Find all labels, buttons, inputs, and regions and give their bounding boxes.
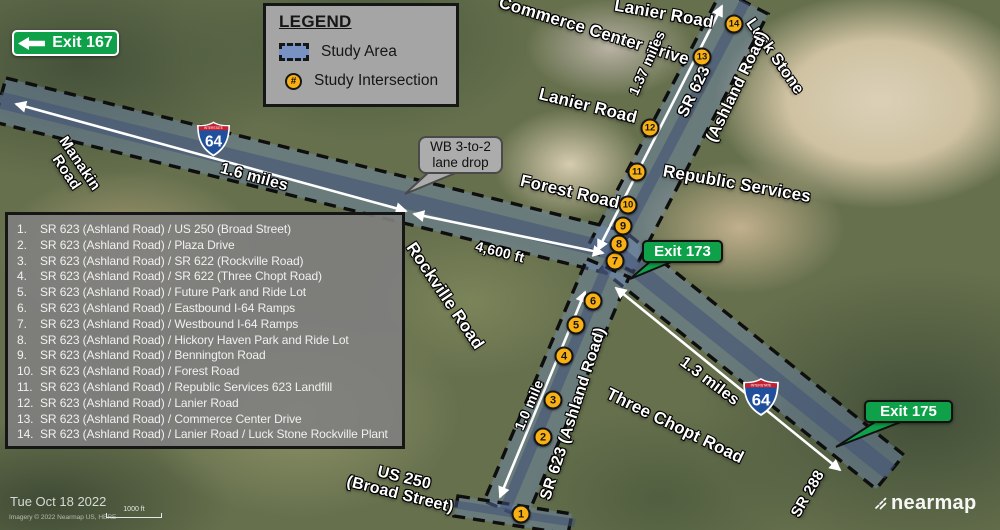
- intersection-number: 3.: [17, 254, 40, 270]
- study-intersection-marker-9: 9: [614, 217, 633, 236]
- exit-173-label: Exit 173: [654, 243, 711, 260]
- intersection-number: 2.: [17, 238, 40, 254]
- intersection-list-item: 2.SR 623 (Ashland Road) / Plaza Drive: [17, 238, 398, 254]
- nearmap-watermark: nearmap: [874, 492, 976, 515]
- interstate-band-text: INTERSTATE: [751, 383, 772, 387]
- intersection-name: SR 623 (Ashland Road) / SR 622 (Three Ch…: [40, 269, 322, 285]
- intersection-list-item: 9.SR 623 (Ashland Road) / Bennington Roa…: [17, 348, 398, 364]
- imagery-credit: Imagery © 2022 Nearmap US, HERE: [9, 514, 116, 521]
- study-area-label: Study Area: [321, 43, 397, 61]
- legend-box: LEGEND Study Area # Study Intersection: [263, 3, 459, 107]
- lane-drop-line2: lane drop: [432, 155, 488, 171]
- intersection-number: 13.: [17, 412, 40, 428]
- imagery-date: Tue Oct 18 2022: [10, 494, 106, 509]
- intersection-number: 10.: [17, 364, 40, 380]
- nearmap-wordmark: nearmap: [891, 492, 976, 515]
- intersection-list-item: 4.SR 623 (Ashland Road) / SR 622 (Three …: [17, 269, 398, 285]
- study-intersection-marker-10: 10: [619, 196, 638, 215]
- scale-bar: 1000 ft: [106, 506, 162, 518]
- intersection-list-item: 3.SR 623 (Ashland Road) / SR 622 (Rockvi…: [17, 254, 398, 270]
- intersection-number: 14.: [17, 427, 40, 443]
- legend-intersection-row: # Study Intersection: [279, 72, 456, 90]
- study-intersection-marker-3: 3: [544, 391, 563, 410]
- study-intersection-marker-1: 1: [512, 505, 531, 524]
- intersection-name: SR 623 (Ashland Road) / Eastbound I-64 R…: [40, 301, 295, 317]
- nearmap-logo-icon: [874, 497, 887, 510]
- intersection-name: SR 623 (Ashland Road) / Bennington Road: [40, 348, 266, 364]
- intersection-number: 5.: [17, 285, 40, 301]
- intersection-list-item: 7.SR 623 (Ashland Road) / Westbound I-64…: [17, 317, 398, 333]
- route-number: 64: [205, 134, 223, 151]
- study-intersection-marker-6: 6: [584, 292, 603, 311]
- exit-167-label: Exit 167: [52, 34, 112, 52]
- intersection-list-box: 1.SR 623 (Ashland Road) / US 250 (Broad …: [5, 212, 405, 449]
- intersection-list-item: 8.SR 623 (Ashland Road) / Hickory Haven …: [17, 333, 398, 349]
- intersection-number: 1.: [17, 222, 40, 238]
- exit-175-label: Exit 175: [880, 403, 937, 420]
- study-intersection-marker-2: 2: [534, 428, 553, 447]
- study-intersection-symbol: #: [285, 73, 302, 90]
- scale-bar-line: [106, 513, 162, 518]
- intersection-name: SR 623 (Ashland Road) / Lanier Road: [40, 396, 239, 412]
- exit-173-sign: Exit 173: [642, 240, 723, 263]
- intersection-name: SR 623 (Ashland Road) / US 250 (Broad St…: [40, 222, 291, 238]
- intersection-number: 11.: [17, 380, 40, 396]
- legend-title: LEGEND: [279, 12, 456, 32]
- study-intersection-marker-11: 11: [628, 163, 647, 182]
- route-number: 64: [752, 390, 771, 409]
- intersection-name: SR 623 (Ashland Road) / Lanier Road / Lu…: [40, 427, 388, 443]
- intersection-list-item: 1.SR 623 (Ashland Road) / US 250 (Broad …: [17, 222, 398, 238]
- map-canvas: INTERSTATE 64 INTERSTATE 64 ManakinRoadL…: [0, 0, 1000, 530]
- i64-shield-west: INTERSTATE 64: [196, 120, 231, 158]
- exit-167-sign: Exit 167: [12, 30, 119, 56]
- intersection-list-item: 13.SR 623 (Ashland Road) / Commerce Cent…: [17, 412, 398, 428]
- lane-drop-callout: WB 3-to-2 lane drop: [418, 136, 503, 174]
- study-intersection-marker-12: 12: [641, 119, 660, 138]
- study-area-swatch: [279, 43, 309, 61]
- intersection-number: 8.: [17, 333, 40, 349]
- intersection-list-item: 11.SR 623 (Ashland Road) / Republic Serv…: [17, 380, 398, 396]
- intersection-number: 12.: [17, 396, 40, 412]
- scale-label: 1000 ft: [106, 506, 162, 513]
- study-intersection-marker-5: 5: [567, 316, 586, 335]
- interstate-band-text: INTERSTATE: [204, 126, 223, 130]
- i64-shield-east: INTERSTATE 64: [742, 376, 780, 418]
- study-intersection-marker-13: 13: [693, 48, 712, 67]
- intersection-name: SR 623 (Ashland Road) / SR 622 (Rockvill…: [40, 254, 303, 270]
- intersection-number: 9.: [17, 348, 40, 364]
- lane-drop-line1: WB 3-to-2: [430, 139, 491, 155]
- study-intersection-marker-14: 14: [725, 15, 744, 34]
- study-intersection-marker-7: 7: [606, 252, 625, 271]
- intersection-number: 7.: [17, 317, 40, 333]
- study-intersection-label: Study Intersection: [314, 72, 438, 90]
- intersection-list-item: 6.SR 623 (Ashland Road) / Eastbound I-64…: [17, 301, 398, 317]
- intersection-number: 6.: [17, 301, 40, 317]
- left-arrow-icon: [18, 37, 45, 50]
- intersection-name: SR 623 (Ashland Road) / Republic Service…: [40, 380, 332, 396]
- intersection-list-item: 12.SR 623 (Ashland Road) / Lanier Road: [17, 396, 398, 412]
- intersection-name: SR 623 (Ashland Road) / Plaza Drive: [40, 238, 235, 254]
- intersection-name: SR 623 (Ashland Road) / Future Park and …: [40, 285, 306, 301]
- exit-175-sign: Exit 175: [864, 400, 953, 423]
- intersection-list-item: 10.SR 623 (Ashland Road) / Forest Road: [17, 364, 398, 380]
- intersection-name: SR 623 (Ashland Road) / Westbound I-64 R…: [40, 317, 298, 333]
- intersection-list-item: 5.SR 623 (Ashland Road) / Future Park an…: [17, 285, 398, 301]
- legend-study-area-row: Study Area: [279, 43, 456, 61]
- intersection-name: SR 623 (Ashland Road) / Hickory Haven Pa…: [40, 333, 349, 349]
- intersection-list-item: 14.SR 623 (Ashland Road) / Lanier Road /…: [17, 427, 398, 443]
- intersection-number: 4.: [17, 269, 40, 285]
- study-intersection-marker-4: 4: [555, 347, 574, 366]
- study-intersection-marker-8: 8: [610, 235, 629, 254]
- intersection-name: SR 623 (Ashland Road) / Commerce Center …: [40, 412, 302, 428]
- intersection-name: SR 623 (Ashland Road) / Forest Road: [40, 364, 239, 380]
